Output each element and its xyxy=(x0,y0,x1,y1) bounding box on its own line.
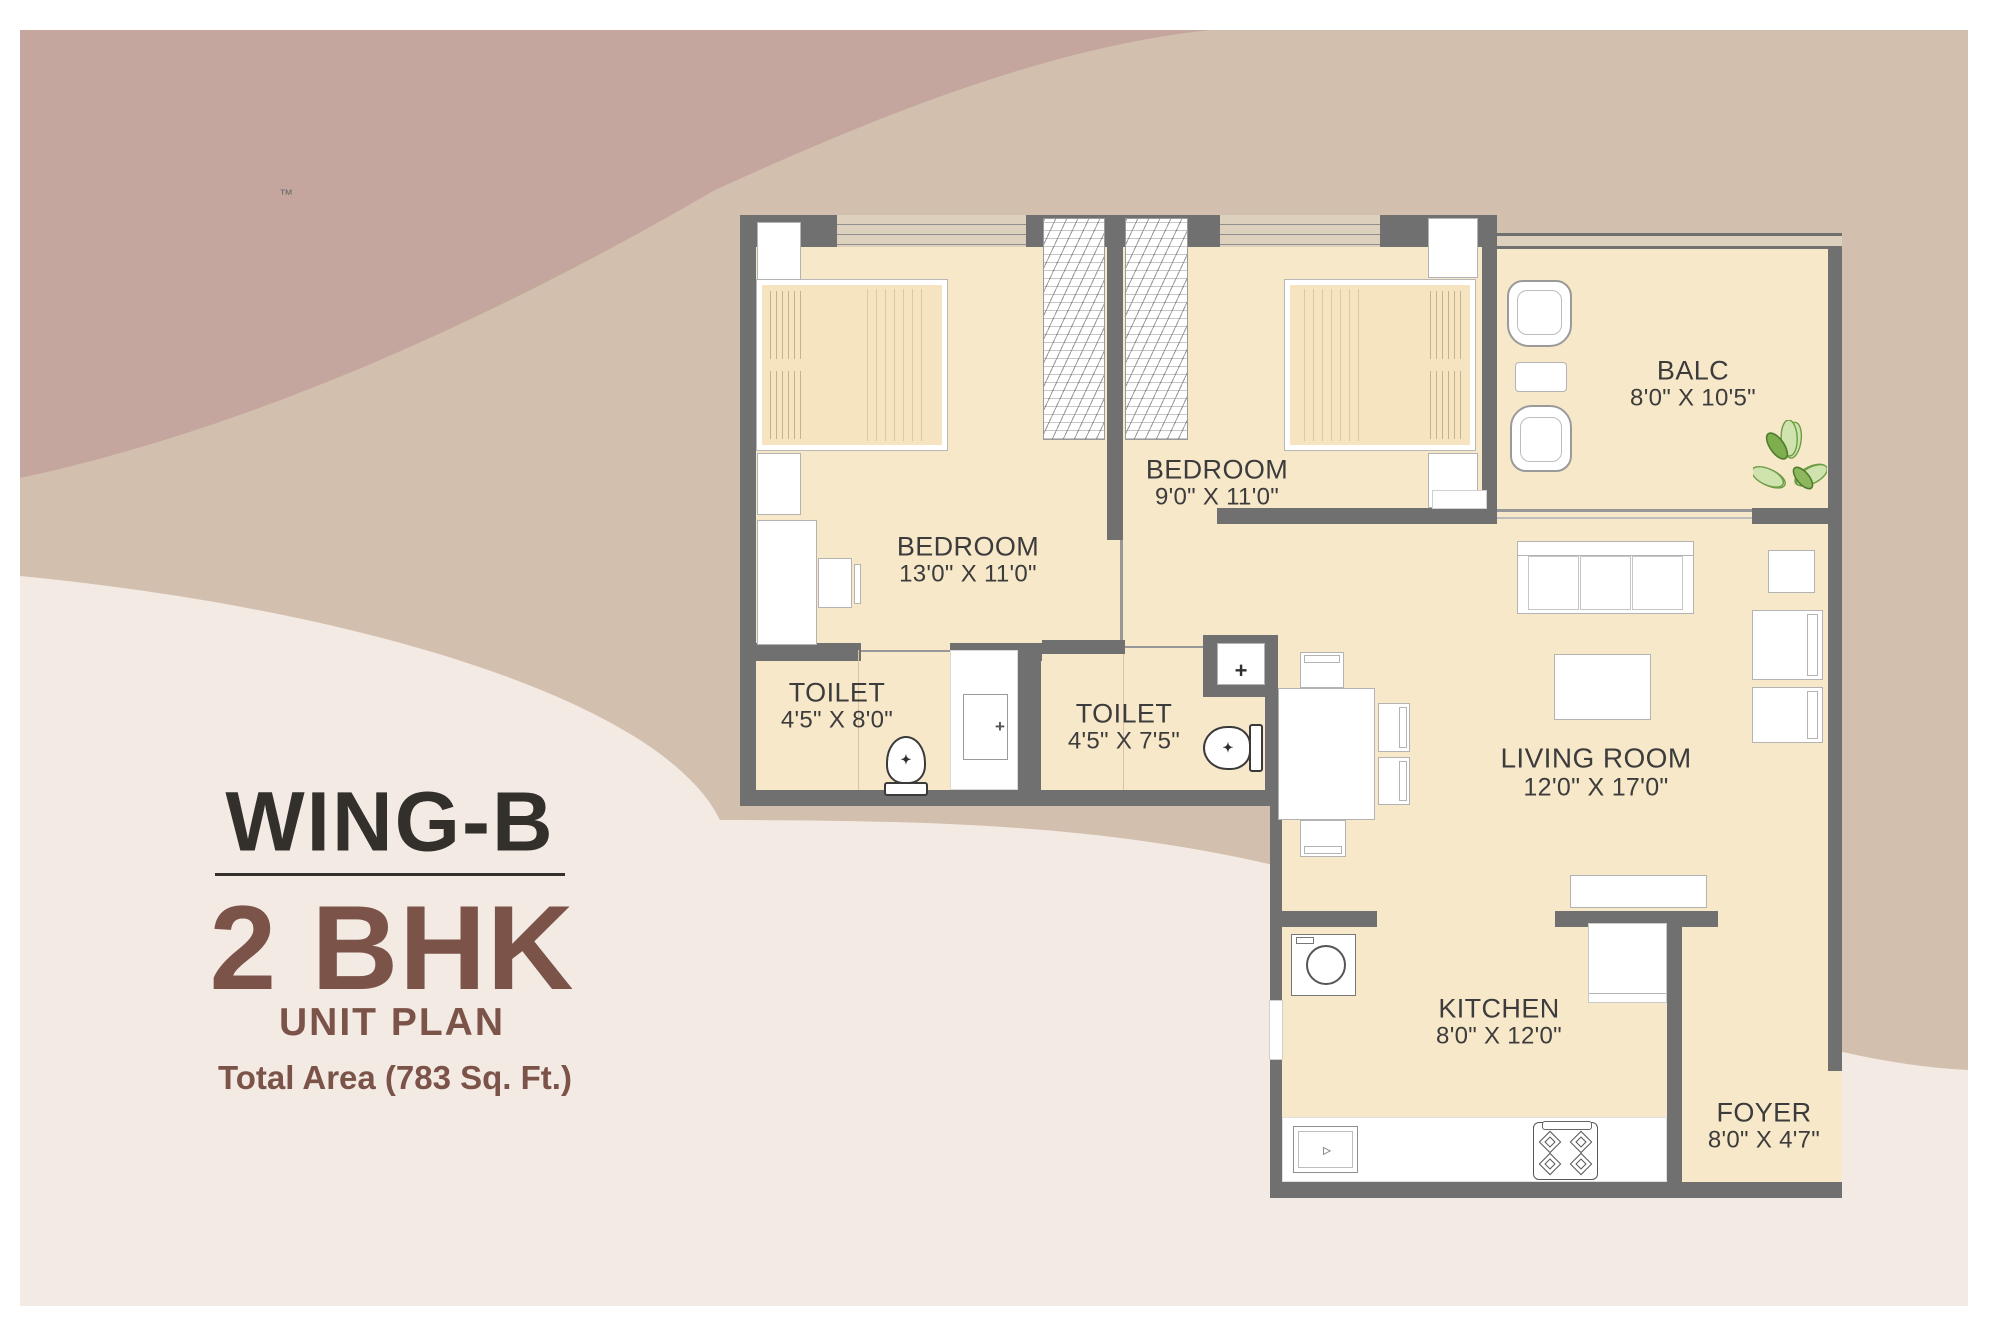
dining-chair xyxy=(1378,703,1410,752)
armchair xyxy=(1752,610,1823,680)
room-dims: 8'0" X 4'7" xyxy=(1708,1128,1820,1155)
pillow-icon xyxy=(1430,371,1462,439)
wall-toilet2-top xyxy=(1042,640,1125,654)
wall-left-exterior xyxy=(740,215,756,806)
dining-chair xyxy=(1378,757,1410,805)
door-leaf-toilet1 xyxy=(861,650,950,652)
sofa-cushion xyxy=(1580,556,1631,610)
refrigerator xyxy=(1588,923,1667,1003)
dining-chair-back xyxy=(1304,655,1340,663)
wardrobe-bedroom1 xyxy=(1043,218,1105,440)
dresser-unit xyxy=(757,520,817,645)
unit-type-title: 2 BHK xyxy=(209,879,574,1017)
washer-controls xyxy=(1296,937,1314,944)
wall-kitchen-top-a xyxy=(1282,911,1377,927)
wall-kitchen-left-b xyxy=(1270,1060,1282,1182)
dining-chair-back xyxy=(1304,846,1342,854)
sliding-door-balcony-track xyxy=(1497,517,1752,519)
pillow-icon xyxy=(770,291,802,359)
sofa-cushion xyxy=(1632,556,1683,610)
wall-niche xyxy=(1432,490,1487,509)
door-leaf-toilet2 xyxy=(1125,646,1203,648)
chair-seat-line xyxy=(1520,417,1562,462)
room-dims: 8'0" X 10'5" xyxy=(1630,386,1756,413)
sofa-cushion xyxy=(1528,556,1579,610)
label-balcony: BALC 8'0" X 10'5" xyxy=(1630,355,1756,412)
balcony-railing xyxy=(1497,233,1842,249)
room-name: TOILET xyxy=(781,677,893,707)
label-toilet1: TOILET 4'5" X 8'0" xyxy=(781,677,893,734)
dining-chair-back xyxy=(1399,707,1407,748)
wc-flush-icon: ✦ xyxy=(1223,740,1234,756)
blanket-folds xyxy=(1304,289,1366,441)
stove-burner xyxy=(1536,1153,1564,1175)
toilet-wc-tank xyxy=(884,782,928,796)
room-dims: 4'5" X 7'5" xyxy=(1068,729,1180,756)
pillow-icon xyxy=(770,371,802,439)
shower-drain-icon: + xyxy=(995,717,1005,737)
room-name: LIVING ROOM xyxy=(1500,742,1691,773)
study-desk xyxy=(818,558,852,608)
balcony-chair xyxy=(1507,280,1572,347)
wardrobe-bedroom2 xyxy=(1125,218,1188,440)
pillow-icon xyxy=(1430,291,1462,359)
chair-seat-line xyxy=(1517,290,1562,335)
wall-wardrobe-divider xyxy=(1107,215,1123,540)
window-kitchen-left xyxy=(1269,1000,1283,1060)
wall-right-exterior xyxy=(1828,247,1842,1071)
bedside-table xyxy=(1428,218,1478,278)
trademark-symbol: ™ xyxy=(279,186,293,202)
bed-bedroom1 xyxy=(757,280,947,450)
stove-knobs xyxy=(1542,1121,1592,1130)
bed-bedroom2 xyxy=(1285,280,1475,450)
armchair xyxy=(1752,687,1823,743)
room-dims: 8'0" X 12'0" xyxy=(1436,1024,1562,1051)
door-leaf-bedroom1 xyxy=(1120,540,1123,640)
unit-plan-subtitle: UNIT PLAN xyxy=(279,1001,505,1045)
wall-toilet2-right xyxy=(1265,697,1278,790)
balcony-chair xyxy=(1510,405,1572,472)
dining-chair-back xyxy=(1399,761,1407,801)
balcony-table xyxy=(1515,362,1567,392)
label-bedroom2: BEDROOM 9'0" X 11'0" xyxy=(1146,454,1288,511)
window-bedroom2-top xyxy=(1220,215,1380,247)
total-area-text: Total Area (783 Sq. Ft.) xyxy=(218,1059,572,1097)
stove-burner xyxy=(1536,1131,1564,1153)
bedside-table xyxy=(757,222,801,280)
dining-table xyxy=(1278,688,1375,820)
plant-icon xyxy=(1753,420,1827,504)
coffee-table xyxy=(1554,654,1651,720)
label-kitchen: KITCHEN 8'0" X 12'0" xyxy=(1436,993,1562,1050)
wing-title: WING-B xyxy=(225,774,554,871)
washer-drum-icon xyxy=(1306,945,1346,985)
stove-burner xyxy=(1567,1153,1595,1175)
dining-chair xyxy=(1300,820,1346,857)
sofa-back xyxy=(1518,542,1693,556)
basin-tap-icon: + xyxy=(1235,658,1248,684)
sliding-door-balcony xyxy=(1497,509,1752,512)
title-divider xyxy=(215,873,565,876)
window-bedroom1-top xyxy=(837,215,1026,247)
room-dims: 12'0" X 17'0" xyxy=(1500,774,1691,802)
fridge-door-line xyxy=(1589,993,1666,994)
wall-toilet-divider xyxy=(1015,650,1041,790)
wc-flush-icon: ✦ xyxy=(901,752,912,768)
kitchen-sink: ▷ xyxy=(1293,1126,1358,1173)
label-toilet2: TOILET 4'5" X 7'5" xyxy=(1068,698,1180,755)
room-dims: 9'0" X 11'0" xyxy=(1146,485,1288,512)
label-bedroom1: BEDROOM 13'0" X 11'0" xyxy=(897,531,1039,588)
room-dims: 13'0" X 11'0" xyxy=(897,562,1039,589)
wall-bedroom1-bottom-a xyxy=(740,643,861,661)
armchair-back xyxy=(1807,614,1818,676)
wall-kitchen-foyer-divider xyxy=(1667,927,1682,1182)
gas-stove xyxy=(1533,1122,1598,1180)
side-table xyxy=(1768,550,1815,593)
wall-bedroom2-right xyxy=(1482,215,1497,524)
wall-toilets-bottom xyxy=(740,790,1282,806)
label-foyer: FOYER 8'0" X 4'7" xyxy=(1708,1097,1820,1154)
armchair-back xyxy=(1807,691,1818,739)
blanket-folds xyxy=(867,289,929,441)
room-name: BEDROOM xyxy=(1146,454,1288,484)
tv-console xyxy=(1570,875,1707,908)
wall-kitchen-left-a xyxy=(1270,806,1282,1000)
sink-drain-icon: ▷ xyxy=(1323,1146,1331,1157)
toilet-wc-tank xyxy=(1249,724,1263,772)
wall-bottom-exterior xyxy=(1270,1182,1842,1198)
washing-machine xyxy=(1291,934,1356,996)
desk-chair xyxy=(854,564,861,604)
floor-plan-page: { "title_block": { "wing": "WING-B", "un… xyxy=(0,0,2000,1333)
room-name: BALC xyxy=(1630,355,1756,385)
room-name: KITCHEN xyxy=(1436,993,1562,1023)
stove-burner xyxy=(1567,1131,1595,1153)
room-name: BEDROOM xyxy=(897,531,1039,561)
room-name: TOILET xyxy=(1068,698,1180,728)
bedside-table xyxy=(757,453,801,515)
dining-chair xyxy=(1300,652,1344,688)
sofa xyxy=(1517,541,1694,614)
label-living-room: LIVING ROOM 12'0" X 17'0" xyxy=(1500,742,1691,801)
room-dims: 4'5" X 8'0" xyxy=(781,708,893,735)
room-name: FOYER xyxy=(1708,1097,1820,1127)
